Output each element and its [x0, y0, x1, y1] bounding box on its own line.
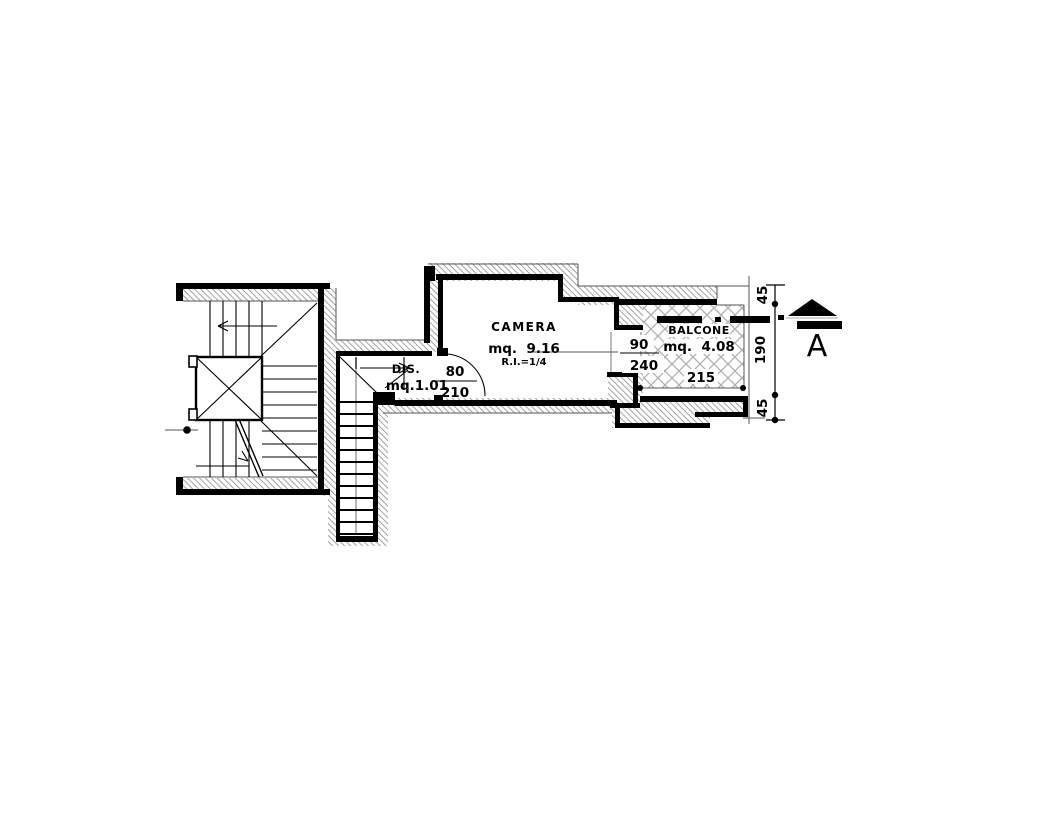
elevator-door-notch-bottom: [189, 409, 197, 420]
dim-190: 190: [753, 336, 769, 364]
window-height-dim: 240: [630, 358, 658, 374]
dis-area-label: mq.1.01: [386, 378, 448, 394]
camera-room-label: CAMERA: [491, 320, 557, 334]
dim-45-top: 45: [755, 286, 771, 305]
center-line-dot: [183, 426, 191, 434]
balcone-area-label: mq. 4.08: [663, 339, 735, 355]
window-width-dim: 90: [630, 337, 649, 353]
balcony-width-dim: 215: [687, 370, 715, 386]
door-width-dim: 80: [446, 364, 465, 380]
dis-room-label: DIS.: [392, 362, 420, 376]
section-marker-bar: [797, 321, 842, 329]
section-letter: A: [807, 329, 828, 364]
dim-45-bottom: 45: [755, 399, 771, 418]
floor-plan-canvas: A CAMERA mq. 9.16 R.I.=1/4 DIS. mq.1.01 …: [0, 0, 1044, 837]
balcone-room-label: BALCONE: [668, 324, 730, 337]
camera-area-label: mq. 9.16: [488, 341, 560, 357]
elevator-shaft: [189, 356, 262, 420]
camera-ri-label: R.I.=1/4: [501, 357, 546, 368]
floor-plan-svg: A CAMERA mq. 9.16 R.I.=1/4 DIS. mq.1.01 …: [0, 0, 1044, 837]
door-height-dim: 210: [441, 385, 469, 401]
page-background: [0, 0, 1044, 837]
elevator-door-notch-top: [189, 356, 197, 367]
